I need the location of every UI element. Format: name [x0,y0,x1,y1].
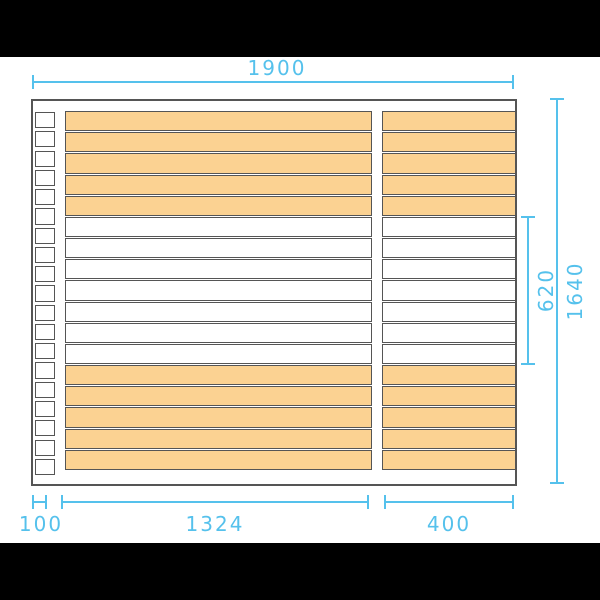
post-cell [35,401,55,417]
board-row [65,323,372,343]
board-row [382,259,516,279]
dim-bottom-left-label: 100 [19,514,63,534]
post-cell [35,247,55,263]
dim-bottom-right-label: 400 [427,514,471,534]
dim-tick-icon [512,495,514,509]
dim-right-outer-label: 1640 [565,262,585,321]
dim-bottom-mid-line [62,501,368,503]
board-row [382,429,516,449]
board-row [65,259,372,279]
board-row [382,323,516,343]
post-cell [35,151,55,167]
board-row [382,132,516,152]
board-row [382,280,516,300]
board-row [65,196,372,216]
post-cell [35,285,55,301]
post-cell [35,112,55,128]
left-post-column [35,112,55,475]
dim-right-inner-label: 620 [536,268,556,312]
board-row [65,238,372,258]
drawing-area: 1900 100 1324 400 620 [0,57,600,543]
post-cell [35,170,55,186]
board-row [382,153,516,173]
board-row [382,196,516,216]
dim-tick-icon [45,495,47,509]
dim-tick-icon [32,75,34,89]
board-row [382,111,516,131]
post-cell [35,131,55,147]
board-row [65,175,372,195]
board-row [382,175,516,195]
post-cell [35,266,55,282]
letterbox-bottom-bar [0,543,600,600]
board-row [65,132,372,152]
dim-top-label: 1900 [248,58,307,78]
board-row [382,386,516,406]
post-cell [35,382,55,398]
post-cell [35,208,55,224]
board-row [382,302,516,322]
dim-bottom-right-line [385,501,513,503]
post-cell [35,228,55,244]
post-cell [35,440,55,456]
dim-tick-icon [521,216,535,218]
board-row [382,407,516,427]
board-row [382,344,516,364]
post-cell [35,189,55,205]
dim-tick-icon [550,98,564,100]
board-row [65,450,372,470]
board-row [65,344,372,364]
post-cell [35,420,55,436]
panel-frame [31,99,517,486]
dim-tick-icon [521,363,535,365]
letterbox-top-bar [0,0,600,57]
dim-bottom-left-line [33,501,46,503]
post-cell [35,305,55,321]
mid-board-column [65,111,372,470]
board-row [65,365,372,385]
board-row [65,111,372,131]
board-row [65,217,372,237]
board-row [382,238,516,258]
post-cell [35,459,55,475]
board-row [65,302,372,322]
dim-tick-icon [32,495,34,509]
post-cell [35,362,55,378]
board-row [65,386,372,406]
dim-top-line [33,81,513,83]
board-row [382,450,516,470]
board-row [65,429,372,449]
board-row [382,365,516,385]
board-row [65,407,372,427]
board-row [382,217,516,237]
dim-bottom-mid-label: 1324 [186,514,245,534]
dim-right-inner-line [527,217,529,364]
post-cell [35,343,55,359]
dim-right-outer-line [556,99,558,483]
board-row [65,153,372,173]
board-row [65,280,372,300]
dim-tick-icon [367,495,369,509]
dim-tick-icon [61,495,63,509]
dim-tick-icon [550,482,564,484]
post-cell [35,324,55,340]
right-board-column [382,111,516,470]
dim-tick-icon [512,75,514,89]
dim-tick-icon [384,495,386,509]
